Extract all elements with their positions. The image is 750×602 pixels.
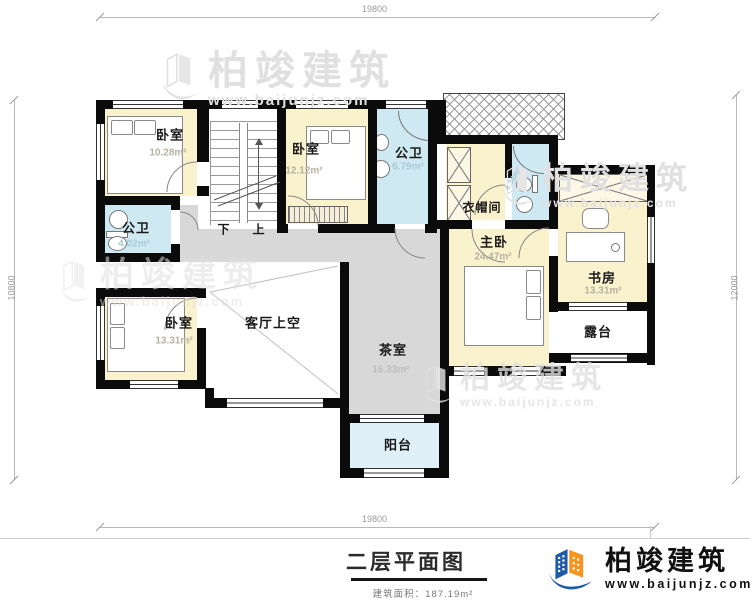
wall <box>484 366 512 376</box>
bedroom2-label: 卧室 <box>292 139 320 158</box>
toilet-icon <box>516 177 532 192</box>
dimension-right-value: 12000 <box>730 275 740 300</box>
window <box>512 366 540 376</box>
wall <box>440 220 449 423</box>
wardrobe-icon <box>288 206 348 223</box>
bedroom3-area: 13.31m² <box>155 336 192 347</box>
tea-room-area: 16.33m² <box>372 365 409 376</box>
plan-title: 二层平面图 <box>346 546 466 576</box>
company-logo: 柏竣建筑 www.baijunjz.com <box>545 543 750 595</box>
window <box>454 366 484 376</box>
window <box>113 100 183 109</box>
wall <box>205 398 227 408</box>
watermark-text: 柏竣建筑 <box>208 50 396 92</box>
watermark-building-icon <box>56 258 94 304</box>
window <box>364 468 424 478</box>
pillow-icon <box>526 296 541 320</box>
stair-down-arrow <box>255 203 263 210</box>
dimension-top-value: 19800 <box>362 4 387 14</box>
pillow-icon <box>110 327 125 349</box>
wall <box>96 380 130 389</box>
wall <box>437 135 557 144</box>
wall <box>549 165 558 228</box>
wall <box>171 244 180 262</box>
pillow-icon <box>111 120 133 135</box>
footer-tick <box>650 526 651 538</box>
master-bedroom-area: 24.47m² <box>474 252 511 263</box>
closet-icon <box>559 174 648 202</box>
wall <box>197 288 206 298</box>
wall <box>96 196 180 205</box>
building-area-text: 建筑面积：187.19m² <box>373 586 474 600</box>
bath-top-area: 6.79m² <box>392 162 424 173</box>
bedroom1-area: 10.28m² <box>149 148 186 159</box>
wall <box>540 366 566 376</box>
study-area: 13.31m² <box>584 286 621 297</box>
wall <box>318 224 395 233</box>
window <box>130 380 178 389</box>
window <box>296 100 348 109</box>
wall <box>437 100 446 144</box>
wall <box>340 468 364 478</box>
living-void-label: 客厅上空 <box>245 313 301 332</box>
wall <box>425 224 437 233</box>
dimension-bottom-value: 19800 <box>362 514 387 524</box>
watermark-url: www.baijunjz.com <box>460 395 608 409</box>
desk-lamp-icon <box>611 243 620 252</box>
window <box>227 398 323 408</box>
wall <box>197 186 209 196</box>
logo-url: www.baijunjz.com <box>605 577 750 591</box>
window <box>360 414 424 423</box>
stair-stringer <box>239 123 248 223</box>
dimension-line-top <box>100 17 655 18</box>
chair-icon <box>582 208 609 229</box>
window <box>222 100 258 109</box>
study-label: 书房 <box>588 268 616 287</box>
wall <box>171 196 180 210</box>
footer-divider <box>0 538 750 539</box>
window <box>569 302 627 311</box>
wall <box>627 302 655 311</box>
building-area-value: 187.19m² <box>425 589 473 600</box>
cloakroom-label: 衣帽间 <box>462 199 501 216</box>
wall <box>424 468 449 478</box>
bedroom2-area: 12.12m² <box>285 166 322 177</box>
wall <box>96 288 206 297</box>
building-area-label: 建筑面积： <box>373 589 426 600</box>
bedroom1-label: 卧室 <box>156 125 184 144</box>
logo-building-icon <box>545 543 597 595</box>
wall <box>323 398 345 408</box>
floor-plan-canvas: 19800 19800 10800 12000 <box>0 0 750 602</box>
bath-top-label: 公卫 <box>395 143 423 162</box>
closet-icon <box>447 147 471 183</box>
wall <box>197 328 206 389</box>
roof-hatch <box>443 93 565 140</box>
bedroom3-label: 卧室 <box>165 313 193 332</box>
watermark-building-icon <box>158 50 202 102</box>
logo-text: 柏竣建筑 <box>605 547 750 577</box>
wall <box>277 224 288 233</box>
wall <box>96 253 180 262</box>
bath-left-label: 公卫 <box>122 218 150 237</box>
stair-up-label: 上 <box>252 221 265 238</box>
dimension-line-bottom <box>100 527 655 528</box>
window <box>571 354 627 362</box>
stair-up-arrow <box>255 138 263 145</box>
wall <box>428 100 437 233</box>
window <box>647 217 655 263</box>
wall <box>549 302 569 311</box>
master-bedroom-label: 主卧 <box>480 232 508 251</box>
terrace-label: 露台 <box>584 322 612 341</box>
stair-direction-line <box>258 142 259 208</box>
pillow-icon <box>110 303 125 325</box>
tea-room-label: 茶室 <box>379 340 407 359</box>
wall <box>368 100 377 233</box>
title-underline <box>351 578 487 581</box>
tea-room-floor <box>348 262 440 414</box>
window <box>96 124 105 180</box>
balcony-label: 阳台 <box>384 435 412 454</box>
wall <box>440 366 454 376</box>
wall <box>197 100 209 162</box>
window <box>386 100 426 109</box>
toilet-tank-icon <box>532 175 538 193</box>
corridor-floor <box>180 205 198 231</box>
dimension-left-value: 10800 <box>7 275 17 300</box>
wall <box>647 165 655 217</box>
stair-down-label: 下 <box>217 221 230 238</box>
wall <box>549 165 655 174</box>
window <box>96 306 105 360</box>
sink-icon <box>516 196 533 213</box>
bath-left-area: 4.02m² <box>118 239 150 250</box>
pillow-icon <box>331 130 350 144</box>
pillow-icon <box>526 270 541 294</box>
wall <box>647 263 655 365</box>
pillow-icon <box>134 120 156 135</box>
